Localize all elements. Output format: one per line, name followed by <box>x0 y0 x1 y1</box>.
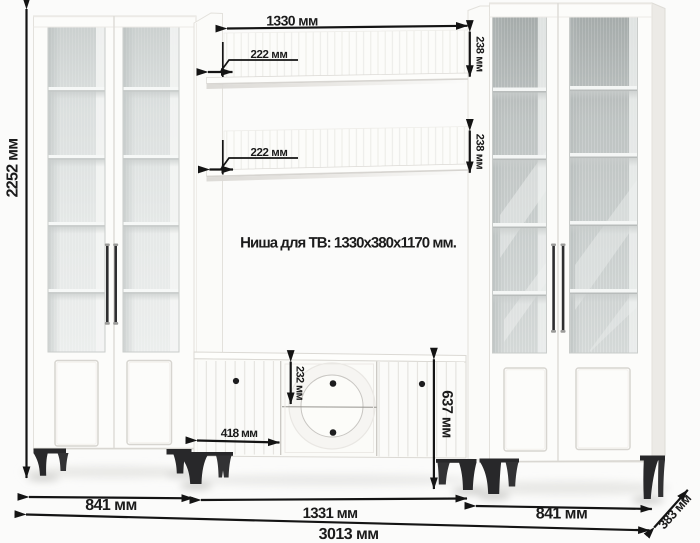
svg-text:232 мм: 232 мм <box>294 366 306 401</box>
svg-text:1330 мм: 1330 мм <box>266 13 318 29</box>
svg-text:841 мм: 841 мм <box>536 506 588 523</box>
svg-text:841 мм: 841 мм <box>85 497 137 514</box>
svg-text:238 мм: 238 мм <box>474 134 486 170</box>
svg-text:637 мм: 637 мм <box>439 390 456 438</box>
svg-text:222 мм: 222 мм <box>251 147 288 159</box>
svg-text:Ниша для ТВ: 1330x380x1170 мм.: Ниша для ТВ: 1330x380x1170 мм. <box>240 235 457 252</box>
svg-text:1331 мм: 1331 мм <box>303 505 358 522</box>
svg-text:3013 мм: 3013 мм <box>319 526 379 543</box>
svg-text:222 мм: 222 мм <box>251 49 288 61</box>
svg-text:418 мм: 418 мм <box>221 426 258 440</box>
svg-text:2252 мм: 2252 мм <box>5 139 22 198</box>
svg-text:238 мм: 238 мм <box>474 36 486 72</box>
